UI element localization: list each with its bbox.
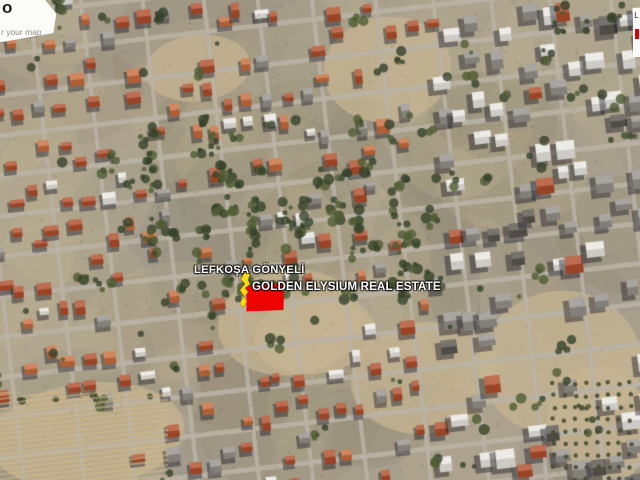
edge-panel-letter: L [634, 11, 638, 20]
satellite-listing-screenshot: LEFKOŞA GÖNYELİ GOLDEN ELYSIUM REAL ESTA… [0, 0, 640, 480]
region-label: LEFKOŞA GÖNYELİ [194, 264, 305, 276]
map-pin-marker[interactable] [239, 272, 251, 308]
watermark-logo-icon: o [2, 0, 12, 18]
satellite-map[interactable] [0, 0, 640, 480]
edge-panel-red-mark [635, 29, 639, 39]
cropped-edge-panel: L [633, 8, 640, 57]
watermark-caption: r your map [1, 27, 42, 37]
listing-name-label: GOLDEN ELYSIUM REAL ESTATE [252, 281, 441, 293]
